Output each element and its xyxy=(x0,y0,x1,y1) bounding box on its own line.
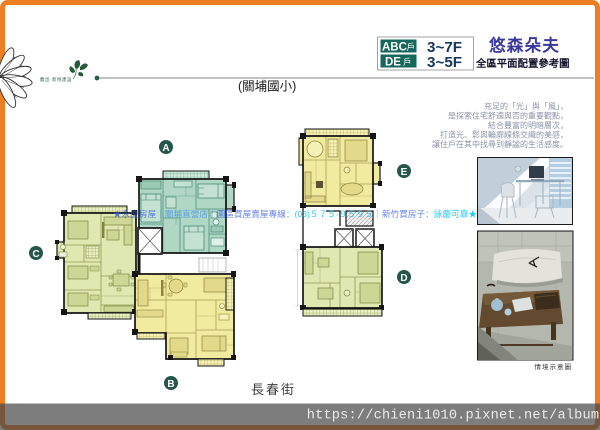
svg-text:打造光、影與輪廓線條交織的美感，: 打造光、影與輪廓線條交織的美感， xyxy=(440,130,568,140)
svg-text:(關埔國小): (關埔國小) xyxy=(238,80,296,94)
svg-text:結合豐富的明暗層次，: 結合豐富的明暗層次， xyxy=(488,120,568,130)
svg-text:3~5F: 3~5F xyxy=(427,54,462,71)
svg-text:戶: 戶 xyxy=(403,57,412,67)
svg-text:情境示意圖: 情境示意圖 xyxy=(535,362,573,371)
svg-text:D: D xyxy=(400,273,407,284)
svg-text:B: B xyxy=(167,379,174,390)
svg-text:DE: DE xyxy=(385,57,401,69)
svg-text:戶: 戶 xyxy=(407,42,416,52)
svg-text:讓住戶在其中找尋到靜謐的生活感度。: 讓住戶在其中找尋到靜謐的生活感度。 xyxy=(432,139,568,149)
svg-text:ABC: ABC xyxy=(382,42,407,54)
svg-text:全區平面配置參考圖: 全區平面配置參考圖 xyxy=(475,57,570,70)
svg-text:悠森朵夫: 悠森朵夫 xyxy=(488,35,560,55)
svg-text:A: A xyxy=(162,143,169,154)
svg-text:長春街: 長春街 xyxy=(251,382,296,397)
svg-text:★永慶房屋｜關埔直營店｜園區買屋賣屋專線：(03)５７５-９: ★永慶房屋｜關埔直營店｜園區買屋賣屋專線：(03)５７５-９５９５｜新竹買房子：… xyxy=(113,208,477,219)
svg-text:https://chieni1010.pixnet.net/: https://chieni1010.pixnet.net/album xyxy=(307,409,600,424)
svg-text:充足的「光」與「風」，: 充足的「光」與「風」， xyxy=(484,101,568,111)
svg-text:馥邑·新悅建設: 馥邑·新悅建設 xyxy=(40,76,72,83)
svg-text:E: E xyxy=(401,167,408,178)
svg-text:是探索住宅舒適與否的重要觀點，: 是探索住宅舒適與否的重要觀點， xyxy=(448,111,568,121)
svg-text:C: C xyxy=(32,249,39,260)
